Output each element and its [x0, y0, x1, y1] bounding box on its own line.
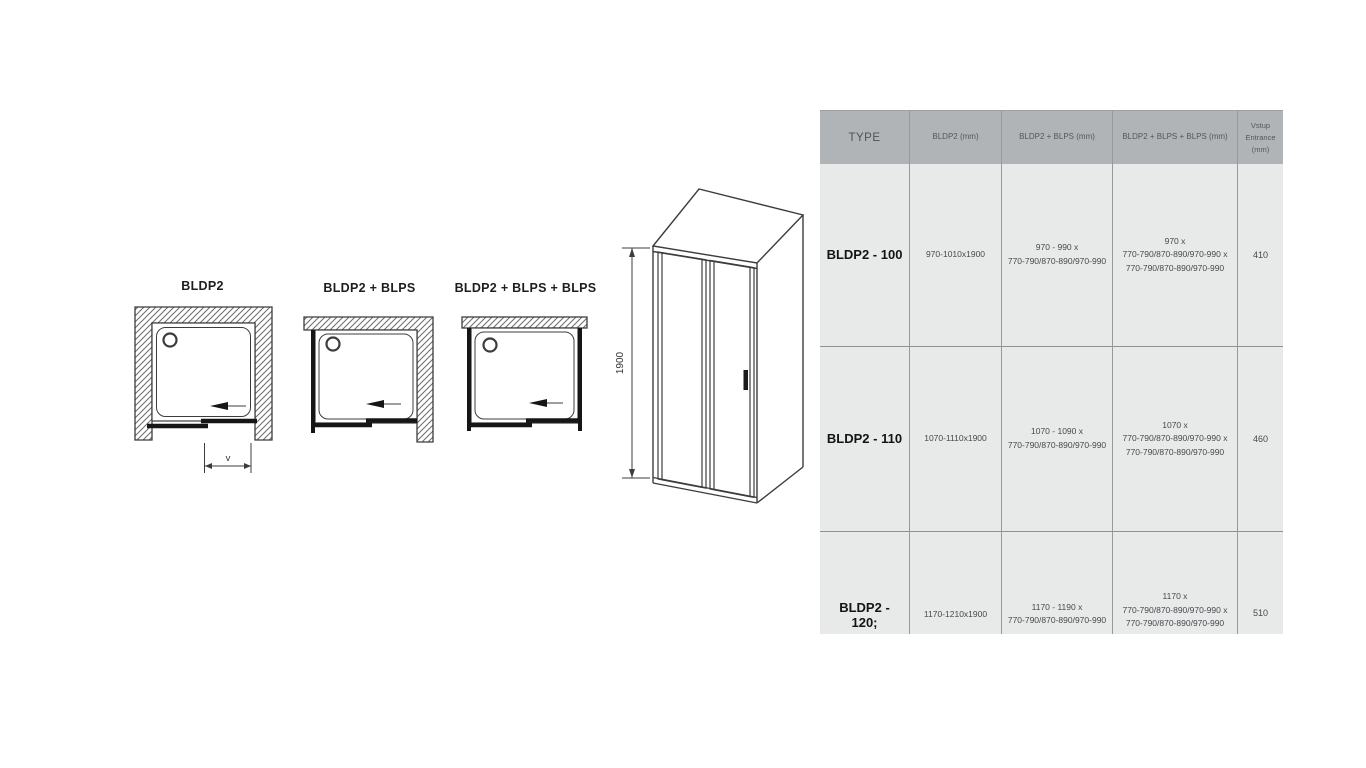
row2-type-text: BLDP2 - 120; [834, 601, 896, 631]
row0-blps-line2: 770-790/870-890/970-990 [1008, 255, 1106, 269]
drain-icon [484, 339, 497, 352]
row1-blps2-line2: 770-790/870-890/970-990 x [1123, 432, 1228, 446]
drain-icon [164, 334, 177, 347]
sliding-door [147, 421, 257, 426]
row1-blps2-line3: 770-790/870-890/970-990 [1126, 446, 1224, 460]
row0-bldp2-blps-cell: 970 - 990 x 770-790/870-890/970-990 [1002, 164, 1113, 346]
row2-entrance-text: 510 [1253, 606, 1268, 620]
plan-view-label-bldp2-blps: BLDP2 + BLPS [297, 281, 442, 295]
row2-blps2-line1: 1170 x [1163, 590, 1188, 604]
row1-entrance-text: 460 [1253, 432, 1268, 446]
plan-view-bldp2-blps-blps-diagram [455, 300, 595, 448]
row0-blps2-line2: 770-790/870-890/970-990 x [1123, 248, 1228, 262]
row2-blps-line1: 1170 - 1190 x [1032, 601, 1083, 615]
wall-hatch [462, 317, 587, 328]
row0-entrance-cell: 410 [1238, 164, 1283, 346]
enclosure-frame [653, 189, 803, 503]
row2-bldp2-text: 1170-1210x1900 [924, 608, 987, 622]
row2-entrance-cell: 510 [1238, 531, 1283, 634]
row1-bldp2-cell: 1070-1110x1900 [910, 346, 1002, 531]
row0-bldp2-text: 970-1010x1900 [926, 248, 985, 262]
row2-bldp2-blps-cell: 1170 - 1190 x 770-790/870-890/970-990 [1002, 531, 1113, 634]
col-header-type: TYPE [820, 111, 910, 164]
row0-blps2-line1: 970 x [1165, 235, 1186, 249]
row1-blps2-line1: 1070 x [1162, 419, 1188, 433]
row2-blps2-line3: 770-790/870-890/970-990 [1126, 617, 1224, 631]
col-header-bldp2-blps: BLDP2 + BLPS (mm) [1002, 111, 1113, 164]
row0-entrance-text: 410 [1253, 248, 1268, 262]
width-dimension-label: v [226, 453, 231, 464]
col-header-entrance: Vstup Entrance (mm) [1238, 111, 1283, 164]
row0-bldp2-blps-blps-cell: 970 x 770-790/870-890/970-990 x 770-790/… [1113, 164, 1238, 346]
dimensions-table: TYPE BLDP2 (mm) BLDP2 + BLPS (mm) BLDP2 … [820, 110, 1283, 634]
col-header-bldp2-text: BLDP2 (mm) [932, 131, 978, 144]
row1-bldp2-text: 1070-1110x1900 [924, 432, 987, 446]
row0-bldp2-cell: 970-1010x1900 [910, 164, 1002, 346]
col-header-bldp2: BLDP2 (mm) [910, 111, 1002, 164]
plan-view-bldp2-blps-diagram [300, 300, 440, 450]
row1-entrance-cell: 460 [1238, 346, 1283, 531]
plan-view-label-bldp2-blps-blps: BLDP2 + BLPS + BLPS [453, 281, 598, 295]
col-header-entrance-line2: Entrance [1245, 132, 1275, 144]
row0-blps-line1: 970 - 990 x [1036, 241, 1079, 255]
col-header-entrance-line3: (mm) [1252, 144, 1270, 156]
height-dimension-label: 1900 [615, 351, 626, 374]
row0-type-cell: BLDP2 - 100 [820, 164, 910, 346]
col-header-bldp2-blps-text: BLDP2 + BLPS (mm) [1019, 131, 1095, 144]
row1-bldp2-blps-cell: 1070 - 1090 x 770-790/870-890/970-990 [1002, 346, 1113, 531]
plan-view-bldp2-diagram: v [133, 300, 275, 478]
row2-blps2-line2: 770-790/870-890/970-990 x [1123, 604, 1228, 618]
col-header-entrance-line1: Vstup [1251, 120, 1270, 132]
row0-blps2-line3: 770-790/870-890/970-990 [1126, 262, 1224, 276]
row2-bldp2-blps-blps-cell: 1170 x 770-790/870-890/970-990 x 770-790… [1113, 531, 1238, 634]
row1-type-text: BLDP2 - 110 [827, 432, 902, 447]
row1-bldp2-blps-blps-cell: 1070 x 770-790/870-890/970-990 x 770-790… [1113, 346, 1238, 531]
col-header-bldp2-blps-blps-text: BLDP2 + BLPS + BLPS (mm) [1122, 131, 1227, 144]
elevation-3d-diagram: 1900 [610, 180, 822, 512]
row1-blps-line1: 1070 - 1090 x [1031, 425, 1083, 439]
door-panel-left [658, 252, 706, 488]
row2-bldp2-cell: 1170-1210x1900 [910, 531, 1002, 634]
drain-icon [327, 338, 340, 351]
height-dimension [622, 248, 650, 478]
row1-blps-line2: 770-790/870-890/970-990 [1008, 439, 1106, 453]
plan-view-label-bldp2: BLDP2 [130, 279, 275, 293]
row2-blps-line2: 770-790/870-890/970-990 [1008, 614, 1106, 628]
row1-type-cell: BLDP2 - 110 [820, 346, 910, 531]
product-spec-sheet: BLDP2 BLDP2 + BLPS BLDP2 + BLPS + BLPS [0, 0, 1366, 768]
door-handle [744, 370, 749, 390]
row0-type-text: BLDP2 - 100 [827, 248, 903, 263]
col-header-bldp2-blps-blps: BLDP2 + BLPS + BLPS (mm) [1113, 111, 1238, 164]
row2-type-cell: BLDP2 - 120; [820, 531, 910, 634]
